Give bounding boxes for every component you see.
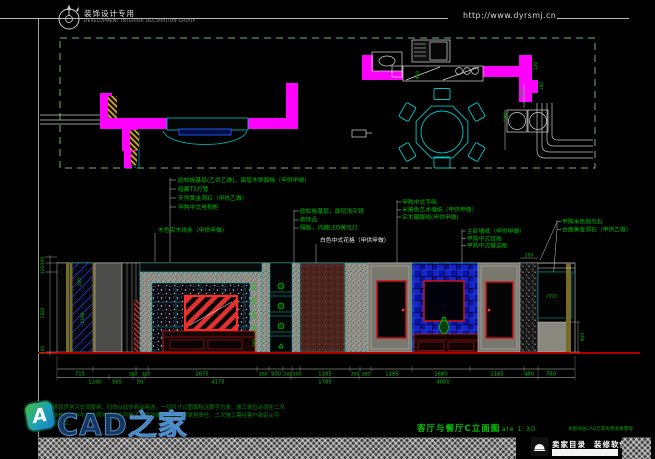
tv-screen — [185, 296, 237, 330]
svg-text:装饰品: 装饰品 — [300, 216, 318, 224]
svg-text:甲购中式电视柜: 甲购中式电视柜 — [178, 203, 219, 211]
svg-text:760: 760 — [546, 372, 557, 378]
plan-dashed-border — [60, 38, 595, 168]
svg-text:1240: 1240 — [88, 380, 102, 386]
svg-text:400: 400 — [415, 71, 421, 80]
bedroom-door-wall — [368, 263, 412, 352]
mosaic-wall — [412, 263, 478, 352]
wall-mirror — [424, 281, 464, 321]
svg-text:100: 100 — [40, 346, 46, 355]
svg-text:200: 200 — [252, 297, 258, 306]
svg-text:300: 300 — [259, 372, 268, 378]
svg-text:2875: 2875 — [195, 372, 208, 378]
svg-text:480: 480 — [524, 372, 535, 378]
pass-through-counter: 7777 — [538, 263, 575, 352]
svg-text:实木踢脚线(甲供甲做): 实木踢脚线(甲供甲做) — [402, 213, 459, 221]
cad-drawing: 400 120 180 520 590 欧松板基层(乙供乙做)，面层木饰面板（甲… — [0, 0, 655, 459]
svg-text:4175: 4175 — [211, 380, 224, 386]
svg-text:2100: 2100 — [80, 312, 86, 323]
svg-text:甲购中式挂画: 甲购中式挂画 — [467, 235, 502, 243]
svg-text:300: 300 — [362, 372, 371, 378]
plan-tv-console — [163, 118, 248, 145]
svg-text:1785: 1785 — [318, 380, 331, 386]
cad-sheet: http://www.dyrsmj.cn 装饰设计专用 DEVELOPMENT … — [0, 0, 655, 459]
cyan-mark: 7777 — [546, 294, 558, 300]
mosaic-column — [520, 263, 538, 352]
svg-text:2320: 2320 — [40, 307, 46, 318]
svg-text:200: 200 — [129, 372, 138, 378]
cad-home-logo-icon: A — [23, 399, 58, 434]
footer-stamp-icon — [531, 437, 548, 456]
plan-kitchen — [352, 40, 483, 137]
svg-text:120: 120 — [533, 62, 539, 71]
svg-text:590: 590 — [503, 113, 509, 122]
svg-text:200: 200 — [77, 278, 83, 287]
svg-text:300: 300 — [293, 372, 302, 378]
svg-text:300: 300 — [142, 372, 151, 378]
door-leaf — [377, 281, 406, 338]
svg-text:台面黄金洞石（甲供乙做）: 台面黄金洞石（甲供乙做） — [562, 226, 632, 234]
tv-wall — [140, 263, 262, 352]
svg-text:1680: 1680 — [434, 372, 448, 378]
svg-text:180: 180 — [539, 82, 545, 91]
svg-text:木色实木线条（甲供甲做）: 木色实木线条（甲供甲做） — [158, 226, 228, 234]
svg-text:4050: 4050 — [436, 380, 450, 386]
dining-chairs — [399, 89, 486, 169]
svg-text:甲购米色抛光石: 甲购米色抛光石 — [562, 218, 603, 226]
svg-text:天然黄金洞石（甲供乙做）: 天然黄金洞石（甲供乙做） — [178, 194, 248, 202]
svg-text:隔板，内藏LED黄光灯: 隔板，内藏LED黄光灯 — [300, 224, 358, 232]
svg-text:200: 200 — [252, 325, 258, 334]
svg-text:米黄色艺术墙纸（甲供甲做）: 米黄色艺术墙纸（甲供甲做） — [402, 206, 477, 214]
svg-text:主卧墙纸（甲供甲做）: 主卧墙纸（甲供甲做） — [467, 227, 525, 235]
svg-text:300: 300 — [351, 372, 360, 378]
drawing-scale: Scale 1:30 — [492, 425, 536, 433]
svg-text:欧松板基层，面层浅灰镜: 欧松板基层，面层浅灰镜 — [300, 207, 364, 215]
svg-text:欧松板基层(乙供乙做)，面层木饰面板（甲供甲做）: 欧松板基层(乙供乙做)，面层木饰面板（甲供甲做） — [178, 176, 310, 184]
plan-tv — [179, 129, 231, 135]
svg-text:300: 300 — [252, 283, 258, 292]
svg-text:200: 200 — [525, 253, 534, 259]
gray-mirror-panel — [70, 263, 95, 352]
dining-table — [399, 89, 486, 169]
svg-text:暗藏T5灯管: 暗藏T5灯管 — [178, 185, 209, 193]
svg-text:300: 300 — [40, 257, 46, 266]
footer-search-bar[interactable] — [552, 449, 618, 456]
svg-text:甲购中式餐边柜: 甲购中式餐边柜 — [467, 242, 508, 250]
svg-text:1185: 1185 — [385, 372, 398, 378]
structural-column — [95, 263, 122, 352]
plan-walls — [100, 55, 538, 168]
plan-sink — [372, 52, 402, 71]
stone-strip — [345, 263, 368, 352]
floor-plan: 400 120 180 520 590 — [40, 38, 595, 168]
svg-text:900: 900 — [580, 333, 586, 342]
wood-door-panel — [300, 263, 345, 352]
svg-text:300: 300 — [252, 311, 258, 320]
dim-row-1: 715 200 300 2875 300 500 200 300 1185 30… — [75, 372, 557, 378]
svg-text:715: 715 — [75, 372, 85, 378]
svg-text:1185: 1185 — [318, 372, 331, 378]
titleblock-hatch-left — [38, 437, 516, 459]
counter — [538, 322, 570, 352]
titleblock-hatch-right — [622, 437, 651, 459]
elevation-drawing: 7777 300 100 2320 100 200 2100 300 200 3… — [38, 253, 640, 386]
svg-text:300: 300 — [252, 339, 258, 348]
corridor-lines-right — [537, 103, 593, 158]
floor-line — [38, 352, 640, 354]
svg-text:100: 100 — [40, 266, 46, 275]
footer-link-catalog[interactable]: 卖家目录 — [552, 440, 586, 449]
svg-text:200: 200 — [284, 372, 293, 378]
svg-text:1185: 1185 — [490, 372, 503, 378]
display-niches — [262, 263, 300, 352]
svg-text:585: 585 — [112, 380, 122, 386]
svg-text:50: 50 — [137, 380, 144, 386]
svg-text:甲购中式字画: 甲购中式字画 — [402, 198, 437, 206]
drawing-title: 客厅与餐厅C立面图 — [417, 422, 500, 434]
sideboard-cabinet — [414, 334, 478, 352]
svg-text:520: 520 — [520, 89, 526, 98]
dim-row-2: 1240 585 50 4175 1785 4050 — [88, 380, 450, 386]
svg-text:白色中式花格（甲供甲做）: 白色中式花格（甲供甲做） — [320, 236, 390, 244]
svg-text:500: 500 — [271, 372, 282, 378]
plan-counter — [403, 66, 483, 81]
second-door-wall — [478, 263, 520, 352]
credit-text: 本图纸由CAD之家免费收集整理 — [568, 426, 633, 432]
